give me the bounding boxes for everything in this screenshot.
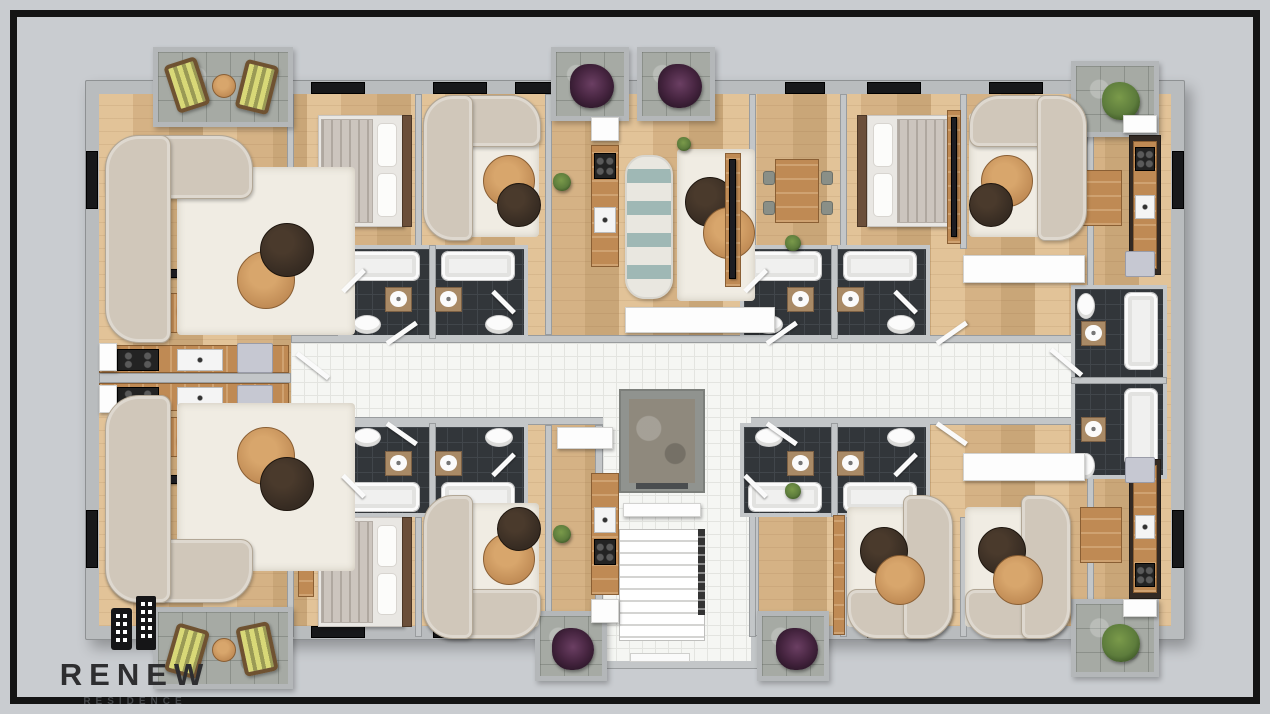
logo: RENEW RESIDENCE (50, 592, 220, 707)
bed-headboard (857, 115, 867, 227)
pillow (377, 573, 397, 615)
tv (729, 159, 736, 279)
sink-vanity (787, 287, 814, 312)
stove (1135, 563, 1155, 587)
lounge-chair (163, 56, 211, 114)
sink-vanity (435, 451, 462, 476)
green-plant (553, 173, 571, 191)
fridge (1125, 457, 1155, 483)
sink-vanity (1081, 321, 1106, 346)
sink-vanity (1081, 417, 1106, 442)
toilet (353, 428, 381, 447)
bathtub (1125, 389, 1157, 465)
lobby-bench (623, 503, 701, 517)
floor-plan (85, 55, 1185, 682)
chair (763, 171, 775, 185)
patio-table (212, 74, 236, 98)
chair (821, 171, 833, 185)
sectional-sofa (105, 135, 171, 343)
bed-headboard (402, 517, 412, 627)
pillow (873, 123, 893, 167)
wardrobe (963, 255, 1085, 283)
balcony (637, 47, 715, 121)
partition-wall (545, 94, 552, 335)
window (1172, 510, 1184, 568)
elevator-door (636, 483, 688, 489)
chair (763, 201, 775, 215)
toilet (887, 428, 915, 447)
kitchen-sink (177, 349, 223, 371)
sectional-sofa (423, 495, 473, 639)
bathtub (844, 252, 916, 280)
tv-stand (833, 515, 845, 635)
sink-vanity (385, 287, 412, 312)
toilet (485, 315, 513, 334)
bathtub (442, 252, 514, 280)
window (785, 82, 825, 94)
balcony (551, 47, 629, 121)
stove (594, 153, 616, 179)
window (989, 82, 1043, 94)
coffee-table (497, 183, 541, 227)
sofa (625, 155, 673, 299)
green-plant (553, 525, 571, 543)
dining-table (1080, 507, 1122, 563)
fridge (1125, 251, 1155, 277)
kitchen-mid-wall (99, 373, 291, 383)
wardrobe (625, 307, 775, 333)
purple-plant (570, 64, 614, 108)
wardrobe (963, 453, 1085, 481)
green-plant (1102, 624, 1140, 662)
coffee-table (260, 457, 314, 511)
lounge-chair (234, 59, 279, 116)
buildings-icon (108, 592, 162, 650)
entrance-door (630, 653, 690, 662)
toilet (1077, 293, 1095, 319)
window (311, 82, 365, 94)
kitchen-sink (1135, 195, 1155, 219)
coffee-table (993, 555, 1043, 605)
stove (594, 539, 616, 565)
kitchen-sink (1135, 515, 1155, 539)
toilet (353, 315, 381, 334)
elevator-cab (629, 399, 695, 483)
toilet (887, 315, 915, 334)
kitchen-sink (594, 207, 616, 233)
cabinet (591, 599, 619, 623)
cabinet (99, 343, 117, 371)
green-plant (785, 483, 801, 499)
balcony (757, 611, 829, 681)
kitchen-sink (594, 507, 616, 533)
coffee-table (497, 507, 541, 551)
sink-vanity (787, 451, 814, 476)
cabinet (1123, 599, 1157, 617)
pillow (377, 123, 397, 167)
purple-plant (552, 628, 594, 670)
coffee-table (875, 555, 925, 605)
window (433, 82, 487, 94)
brand-subtitle: RESIDENCE (50, 696, 220, 707)
fridge (237, 343, 273, 373)
blanket (897, 119, 949, 223)
cabinet (1123, 115, 1157, 133)
pillow (377, 173, 397, 217)
chair (821, 201, 833, 215)
partition-wall (960, 94, 967, 249)
cabinet (591, 117, 619, 141)
kitchen-counter (591, 473, 619, 595)
stove (117, 349, 159, 371)
window (1172, 151, 1184, 209)
sink-vanity (837, 287, 864, 312)
wardrobe (557, 427, 613, 449)
tv (951, 117, 957, 237)
bed-headboard (402, 115, 412, 227)
staircase (619, 529, 705, 641)
stair-railing (698, 529, 705, 615)
purple-plant (776, 628, 818, 670)
pillow (873, 173, 893, 217)
lounge-chair (235, 621, 279, 677)
green-plant (785, 235, 801, 251)
sink-vanity (837, 451, 864, 476)
brand-name: RENEW (50, 657, 220, 693)
sectional-sofa (105, 395, 171, 603)
toilet (485, 428, 513, 447)
stove (1135, 147, 1155, 171)
bathtub (1125, 293, 1157, 369)
sectional-sofa (423, 95, 473, 241)
window (515, 82, 555, 94)
coffee-table (969, 183, 1013, 227)
pillow (377, 525, 397, 567)
sink-vanity (435, 287, 462, 312)
green-plant (677, 137, 691, 151)
coffee-table (260, 223, 314, 277)
window (311, 626, 365, 638)
dining-table (775, 159, 819, 223)
window (86, 510, 98, 568)
bathroom-divider (1071, 377, 1167, 384)
sink-vanity (385, 451, 412, 476)
partition-wall (415, 517, 422, 637)
balcony (153, 47, 293, 127)
sectional-sofa (1037, 95, 1087, 241)
floorplan-poster: { "logo": { "brand": "RENEW", "sub": "RE… (0, 0, 1270, 714)
window (867, 82, 921, 94)
purple-plant (658, 64, 702, 108)
partition-wall (545, 425, 552, 637)
window (86, 151, 98, 209)
partition-wall (415, 94, 422, 249)
